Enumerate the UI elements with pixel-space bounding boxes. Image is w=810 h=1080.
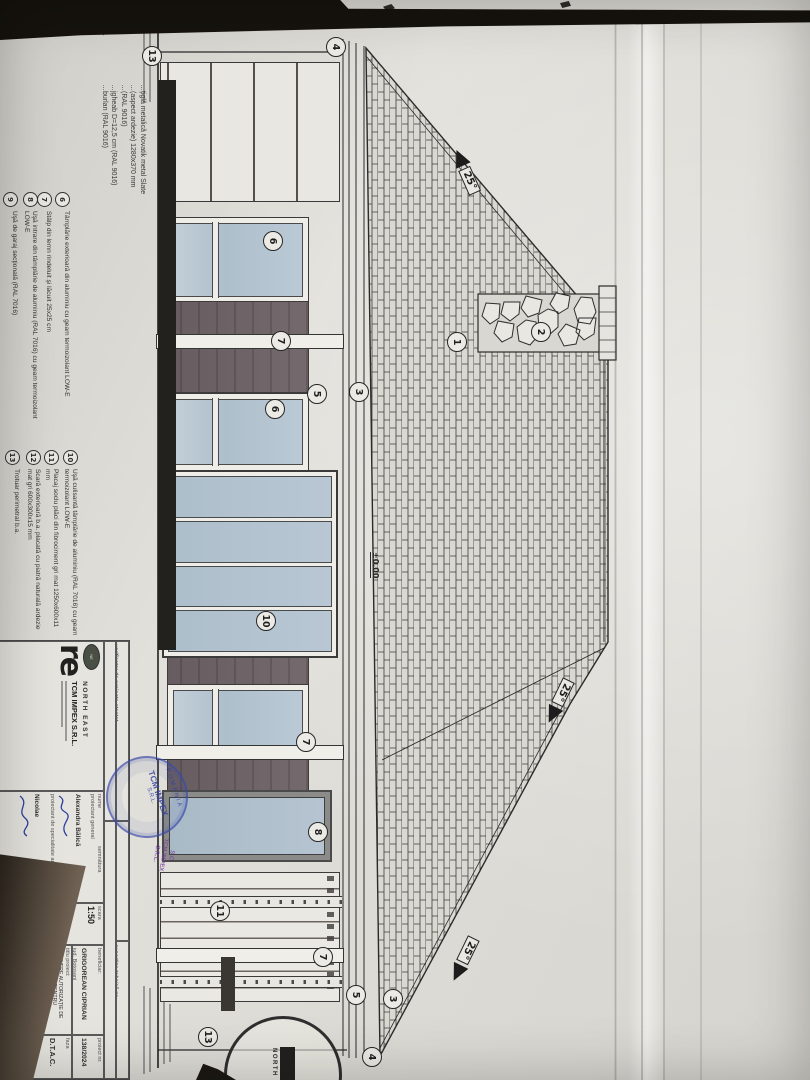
corner-logo-slab-icon: [280, 1047, 295, 1080]
legend-item: 10 Uşă culisantă tâmplărie de aluminiu (…: [63, 450, 78, 640]
callout-bubble: 7: [296, 732, 316, 752]
callout-bubble: 4: [326, 37, 346, 57]
callout-bubble: 3: [383, 989, 403, 1009]
callout-bubble: 5: [307, 384, 327, 404]
dark-cladding: [168, 658, 308, 685]
window-mullion: [212, 689, 219, 747]
company-logo-icon: re: [57, 644, 83, 675]
callout-bubble: 10: [256, 611, 276, 631]
window: [168, 218, 308, 302]
designer-name: Alexandra Bălică: [74, 794, 81, 846]
legend-item: 6 Tâmplărie exterioară din aluminiu cu g…: [55, 192, 70, 427]
callout-bubble: 11: [210, 901, 230, 921]
callout-bubble: 6: [265, 399, 285, 419]
fold-crease: [641, 0, 643, 1080]
legend-fragment: …ţiglă metalică Novatik metal Slate: [138, 84, 148, 194]
fold-crease: [663, 0, 665, 1080]
photo-frame: ±0.00 25° 25° 25° 13 4 6 7 6 5 3 1 2 10 …: [0, 0, 810, 1080]
roof-hatch: [366, 48, 608, 1056]
elevation-marker: ±0.00: [370, 552, 380, 578]
company-cell: NE re NORTH EAST TCM IMPEX S.R.L.: [0, 641, 104, 791]
legend-item: 8 Uşă intrare din tâmplărie de aluminiu …: [23, 192, 38, 427]
callout-bubble: 8: [308, 822, 328, 842]
legend-fragment: …(aspect ardezie) 1280x370 mm: [128, 84, 138, 194]
callout-bubble: 13: [198, 1027, 218, 1047]
callout-bubble: 6: [263, 231, 283, 251]
glass-panel: [169, 567, 331, 607]
company-brand: NORTH EAST: [81, 681, 88, 738]
facade-drawing: ±0.00 25° 25° 25° 13 4 6 7 6 5 3 1 2 10 …: [0, 0, 810, 1080]
legend-item: 13 Trotuar perimetral b.a.: [5, 450, 20, 640]
glass-panel: [169, 611, 331, 651]
dark-band: [221, 957, 235, 1011]
callout-bubble: 7: [313, 947, 333, 967]
legend-fragment: …burlan (RAL 9016): [100, 84, 110, 194]
designer-name: Nicolae: [34, 794, 41, 817]
callout-bubble: 4: [362, 1047, 382, 1067]
revizia-empty-cell: [104, 821, 116, 1079]
address-line: [66, 681, 68, 741]
glass-panel: [169, 477, 331, 517]
legend-item: 9 Uşă de garaj secţională (RAL 7016): [3, 192, 18, 427]
signature-scribble: [55, 794, 71, 838]
legend-fragments: …ţiglă metalică Novatik metal Slate …(as…: [100, 84, 148, 194]
garage-door: [160, 62, 340, 202]
wood-post: [156, 334, 344, 349]
dark-cladding: [168, 758, 308, 790]
callout-bubble: 3: [349, 382, 369, 402]
plinth-strip: [158, 80, 176, 650]
callout-bubble: 13: [142, 46, 162, 66]
company-name: TCM IMPEX S.R.L.: [70, 681, 79, 746]
fold-crease: [700, 0, 702, 1080]
fold-crease: [614, 0, 617, 1080]
door-glass: [170, 798, 324, 854]
expertiza-cell: expertiza tehnică nr.: [116, 941, 129, 1079]
wood-post: [156, 745, 344, 760]
callout-bubble: 2: [531, 322, 551, 342]
project-number-cell: proiect nr. 138/2024: [72, 1035, 104, 1079]
callout-bubble: 5: [346, 985, 366, 1005]
verificator-empty-cell: [116, 821, 129, 941]
window-mullion: [212, 398, 219, 466]
callout-bubble: 1: [447, 332, 467, 352]
window: [168, 394, 308, 470]
window: [168, 685, 308, 751]
legend-item: 7 Stâlp din lemn rindeluit şi lăcuit 25x…: [37, 192, 52, 427]
address-line: [62, 681, 64, 727]
callout-bubble: 7: [271, 331, 291, 351]
beneficiary-cell: beneficiar: GRIGOREAN CIPRIAN jud. Botoş…: [72, 945, 104, 1035]
legend-fragment: …(RAL 9016): [119, 84, 129, 194]
sliding-door: [162, 470, 338, 658]
window-mullion: [212, 222, 219, 298]
downspout: [160, 896, 342, 908]
downspout: [160, 976, 342, 988]
legend-fragment: …jgheab D=12,5 cm (RAL 9016): [109, 84, 119, 194]
glass-panel: [169, 522, 331, 562]
legend-item: 12 Scară exterioară b.a. placată cu piat…: [26, 450, 41, 640]
signature-scribble: [17, 794, 31, 838]
legend-item: 11 Placaj soclu plăci din fibrociment gr…: [44, 450, 59, 640]
fold-crease-highlight: [628, 0, 666, 1080]
